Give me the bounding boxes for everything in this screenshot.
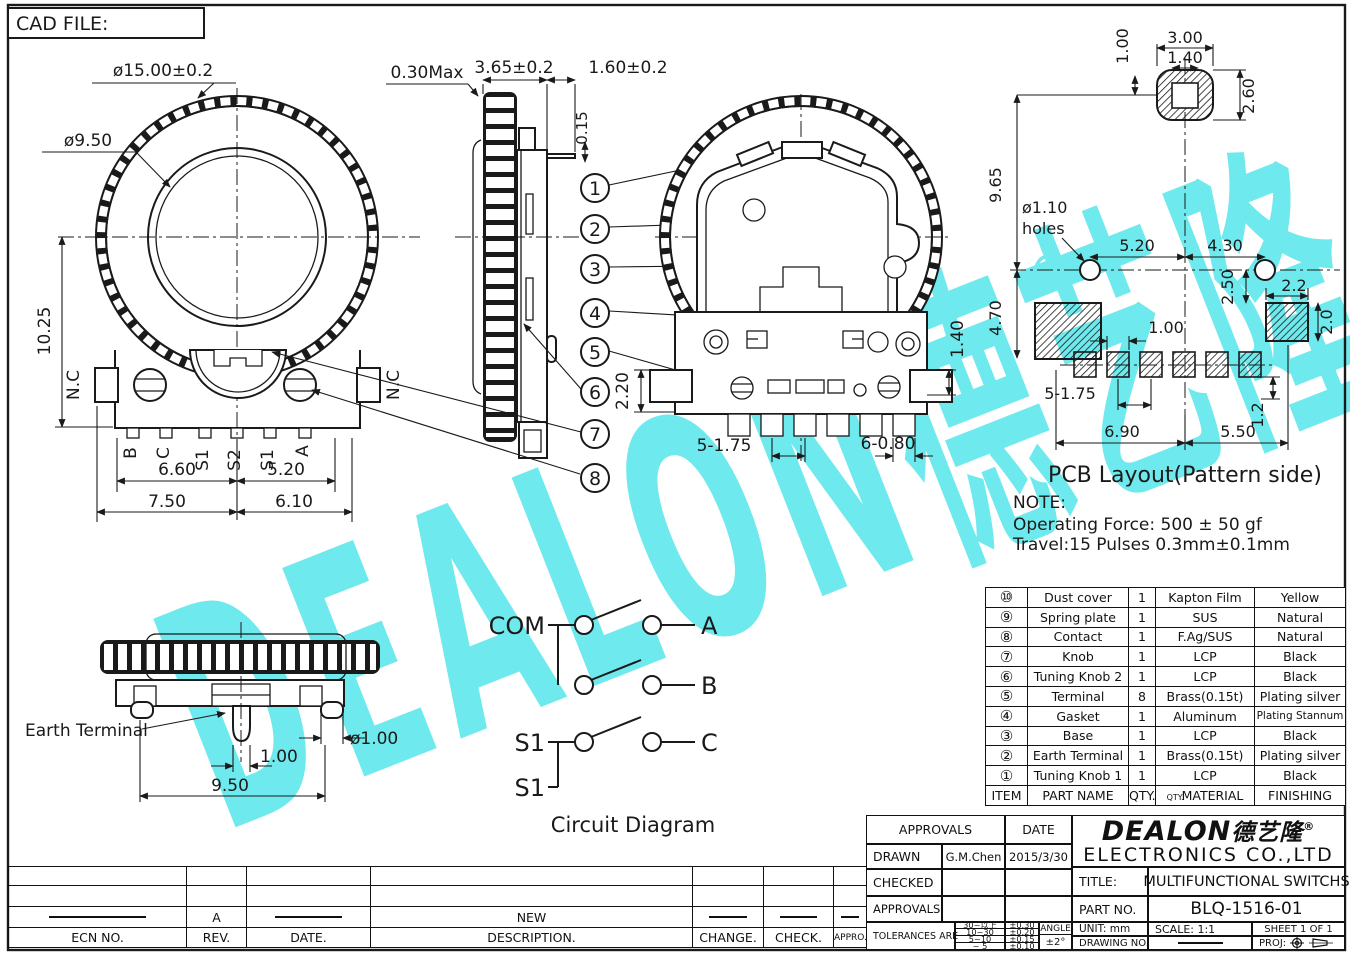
dim-2-0: 2.0: [1317, 309, 1336, 334]
unit-cell: UNIT: mm: [1072, 922, 1148, 936]
callout-3: 3: [589, 259, 601, 281]
table-row: ⑩Dust cover1Kapton FilmYellow: [986, 588, 1346, 608]
dim-1-00-pad: 1.00: [1148, 318, 1184, 337]
part-no-value: BLQ-1516-01: [1148, 896, 1345, 922]
drawing-no-label: DRAWING NO.: [1072, 936, 1148, 950]
check-header: CHECK.: [764, 928, 834, 948]
terminal-label-s2: S2: [225, 449, 245, 471]
rev-header: REV.: [187, 928, 247, 948]
dim-2-20: 2.20: [613, 372, 633, 410]
dim-5-50: 5.50: [1220, 422, 1256, 441]
company-name: ELECTRONICS CO.,LTD: [1083, 846, 1334, 865]
circuit-b-label: B: [701, 672, 717, 700]
dim-pin-width: 1.00: [260, 747, 298, 767]
dim-4-30: 4.30: [1207, 236, 1243, 255]
hole-dia-label: ø1.10: [1022, 198, 1067, 217]
tolerances-label: TOLERANCES ARE: [866, 922, 955, 950]
dim-6-90: 6.90: [1104, 422, 1140, 441]
pcb-layout-title: PCB Layout(Pattern side): [1048, 463, 1322, 488]
dim-7-50: 7.50: [148, 492, 186, 512]
part-name: Dust cover: [1028, 588, 1129, 608]
dim-1-40-pcb: 1.40: [1167, 48, 1203, 67]
hole-word-label: holes: [1022, 219, 1065, 238]
table-row: ③Base1LCPBlack: [986, 726, 1346, 746]
header-finishing: FINISHING: [1255, 785, 1346, 805]
dim-2-60: 2.60: [1239, 78, 1258, 114]
circuit-com-label: COM: [489, 612, 545, 640]
dim-6-60: 6.60: [158, 460, 196, 480]
front-terminal-pins: [127, 428, 311, 438]
table-row: ②Earth Terminal1Brass(0.15t)Plating silv…: [986, 746, 1346, 766]
parts-table: ⑩Dust cover1Kapton FilmYellow ⑨Spring pl…: [985, 587, 1346, 806]
table-row: ⑧Contact1F.Ag/SUSNatural: [986, 627, 1346, 647]
dash-line: [1178, 942, 1223, 944]
revision-table: A NEW ECN NO. REV. DATE. DESCRIPTION. CH…: [8, 866, 867, 948]
dim-height: 10.25: [35, 307, 55, 356]
dim-3-65: 3.65±0.2: [474, 58, 553, 78]
terminal-label-s1a: S1: [193, 449, 213, 471]
back-view: [650, 94, 952, 462]
back-terminal-pads: [728, 414, 915, 436]
dim-2-2: 2.2: [1281, 276, 1306, 295]
terminal-label-a: A: [293, 445, 313, 457]
circuit-diagram: [548, 600, 695, 787]
description-header: DESCRIPTION.: [371, 928, 693, 948]
dim-1-00-shaft: 1.00: [1113, 28, 1132, 64]
dash-line: [275, 916, 343, 918]
change-header: CHANGE.: [693, 928, 764, 948]
rev-row-a: A NEW: [9, 907, 867, 928]
callout-5: 5: [589, 342, 601, 364]
company-logo: DEALON德艺隆® ELECTRONICS CO.,LTD: [1072, 815, 1345, 867]
dim-1-40: 1.40: [948, 320, 968, 358]
rev-value: A: [187, 907, 247, 928]
dim-5-20: 5.20: [267, 460, 305, 480]
dim-6-0-80: 6-0.80: [861, 434, 916, 454]
rev-description: NEW: [371, 907, 693, 928]
table-row: ④Gasket1AluminumPlating Stannum: [986, 706, 1346, 726]
header-item: ITEM: [986, 785, 1028, 805]
tolerance-ranges: 30~以上 10~30 5~10 ~ 5: [955, 922, 1005, 950]
dash-line: [780, 916, 818, 918]
circuit-c-label: C: [701, 729, 718, 757]
earth-terminal-label: Earth Terminal: [25, 721, 148, 741]
terminal-label-b: B: [121, 447, 141, 459]
dim-5-1-75-pcb: 5-1.75: [1044, 384, 1096, 403]
table-row: ⑨Spring plate1SUSNatural: [986, 607, 1346, 627]
note-title: NOTE:: [1013, 493, 1066, 513]
side-view: [455, 92, 585, 458]
dim-0-15: 0.15: [573, 111, 591, 144]
drawn-label: DRAWN: [866, 844, 942, 869]
dim-9-50: 9.50: [211, 776, 249, 796]
rev-header-row: ECN NO. REV. DATE. DESCRIPTION. CHANGE. …: [9, 928, 867, 948]
front-view: [58, 88, 420, 470]
drawn-by: G.M.Chen: [942, 844, 1005, 869]
approvals-date: [1005, 896, 1072, 922]
nc-left-label: N.C: [64, 370, 84, 400]
dash-line: [49, 916, 146, 918]
note-operating-force: Operating Force: 500 ± 50 gf: [1013, 515, 1263, 535]
wheel-view-dimensions: [140, 712, 365, 802]
dealon-logo: DEALON德艺隆®: [1102, 818, 1316, 845]
table-row: ①Tuning Knob 11LCPBlack: [986, 766, 1346, 786]
angle-tolerance: ANGLE ±2°: [1039, 922, 1072, 950]
third-angle-projection-icon: [1289, 937, 1341, 949]
checked-by: [942, 869, 1005, 896]
cad-file-label: CAD FILE:: [16, 13, 108, 35]
dim-2-50: 2.50: [1218, 269, 1237, 305]
ecn-no-header: ECN NO.: [9, 928, 187, 948]
tolerance-values: ±0.30 ±0.20 ±0.15 ±0.10: [1005, 922, 1039, 950]
dim-5-1-75-back: 5-1.75: [697, 436, 752, 456]
part-no-label: PART NO.: [1072, 896, 1148, 922]
projection-cell: PROJ:: [1252, 936, 1345, 950]
callout-4: 4: [589, 303, 601, 325]
table-row: ⑤Terminal8Brass(0.15t)Plating silver: [986, 686, 1346, 706]
rev-row-empty: [9, 886, 867, 907]
header-part-name: PART NAME: [1028, 785, 1129, 805]
dim-0-30max: 0.30Max: [391, 63, 464, 83]
date-header: DATE: [1005, 815, 1072, 844]
dim-pin-dia: ø1.00: [350, 729, 398, 749]
callout-1: 1: [589, 178, 601, 200]
dash-line: [841, 916, 859, 918]
approvals-header: APPROVALS: [866, 815, 1005, 844]
header-material: QTY.MATERIAL: [1156, 785, 1255, 805]
parts-header-row: ITEM PART NAME QTY. QTY.MATERIAL FINISHI…: [986, 785, 1346, 805]
date-header: DATE.: [247, 928, 371, 948]
circuit-s1-top-label: S1: [514, 729, 545, 757]
dash-line: [709, 916, 748, 918]
wheel-bottom-view: [100, 622, 380, 762]
terminal-label-c: C: [154, 447, 174, 459]
sheet-cell: SHEET 1 OF 1: [1252, 922, 1345, 936]
title-block: APPROVALS DATE DRAWN G.M.Chen 2015/3/30 …: [866, 815, 1345, 950]
circuit-s1-bottom-label: S1: [514, 774, 545, 802]
dim-9-65: 9.65: [986, 167, 1005, 203]
table-row: ⑥Tuning Knob 21LCPBlack: [986, 667, 1346, 687]
note-travel: Travel:15 Pulses 0.3mm±0.1mm: [1012, 535, 1290, 555]
dim-inner-dia: ø9.50: [64, 131, 112, 151]
circuit-diagram-title: Circuit Diagram: [551, 813, 715, 837]
checked-date: [1005, 869, 1072, 896]
header-qty: QTY.: [1129, 785, 1156, 805]
circuit-a-label: A: [701, 612, 718, 640]
item-no: ⑩: [986, 588, 1028, 608]
dim-outer-dia: ø15.00±0.2: [113, 61, 213, 81]
callout-6: 6: [589, 382, 601, 404]
dim-6-10: 6.10: [275, 492, 313, 512]
approvals-label: APPROVALS: [866, 896, 942, 922]
scale-cell: SCALE: 1:1: [1148, 922, 1252, 936]
approvals-by: [942, 896, 1005, 922]
checked-label: CHECKED: [866, 869, 942, 896]
table-row: ⑦Knob1LCPBlack: [986, 647, 1346, 667]
title-value: MULTIFUNCTIONAL SWITCHS: [1148, 867, 1345, 896]
callout-7: 7: [589, 424, 601, 446]
dim-1-60: 1.60±0.2: [588, 58, 667, 78]
dim-4-70: 4.70: [986, 300, 1005, 336]
rev-row-empty: [9, 867, 867, 886]
dim-5-20-pcb: 5.20: [1119, 236, 1155, 255]
appro-header: APPRO.: [834, 928, 867, 948]
callout-8: 8: [589, 468, 601, 490]
title-label: TITLE:: [1072, 867, 1148, 896]
drawn-date: 2015/3/30: [1005, 844, 1072, 869]
drawing-no-value: [1148, 936, 1252, 950]
dim-3-00: 3.00: [1167, 28, 1203, 47]
callout-2: 2: [589, 219, 601, 241]
